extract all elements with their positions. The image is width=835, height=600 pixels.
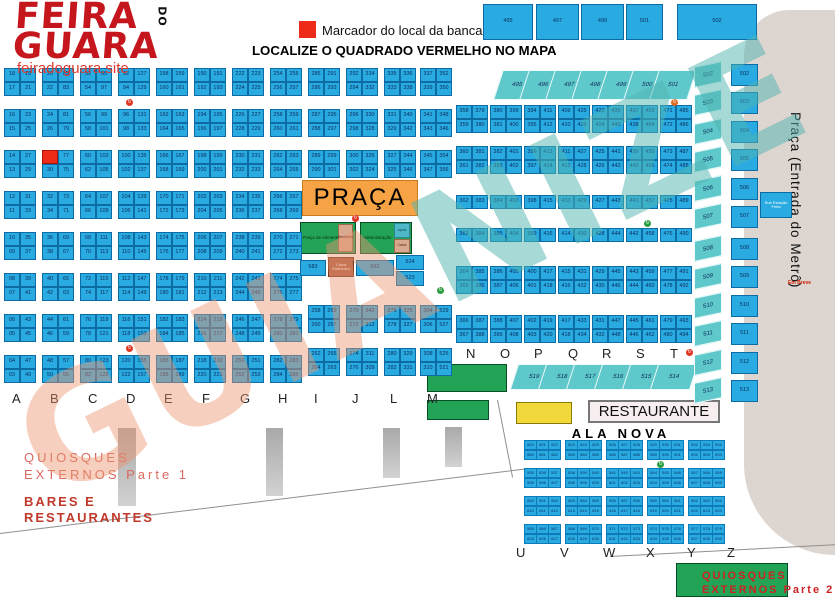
stall-cell: 511 xyxy=(731,323,758,345)
stall-cell: 383 xyxy=(490,160,506,174)
stall-cell: 606 xyxy=(671,478,684,488)
stall-cell: 274 xyxy=(346,348,362,362)
stall-cell: 43 xyxy=(20,314,36,328)
stall-cell: 534 xyxy=(712,440,725,450)
stall-cell: 306 xyxy=(420,319,436,333)
stall-cell: 101 xyxy=(96,123,112,137)
stall-cell: 330 xyxy=(362,109,378,123)
stall-cell: 194 xyxy=(194,109,210,123)
stall-cell: 48 xyxy=(42,355,58,369)
stall-cell: 340 xyxy=(400,109,416,123)
stall-cell: 473 xyxy=(660,146,676,160)
stall-cell: 507 xyxy=(694,203,722,230)
boundary-line xyxy=(497,400,514,478)
stall-cell: 44 xyxy=(42,314,58,328)
stall-cell: 245 xyxy=(248,287,264,301)
stall-cell: 187 xyxy=(172,355,188,369)
stall-cell: 630 xyxy=(589,534,602,544)
stall-cell: 64 xyxy=(80,191,96,205)
stall-cell: 474 xyxy=(660,160,676,174)
stall-cell: 264 xyxy=(308,362,324,376)
stall-cell: 402 xyxy=(524,315,540,329)
stall-cell: 260 xyxy=(308,319,324,333)
stall-cell: 506 xyxy=(694,175,722,202)
stall-cell: 54 xyxy=(80,82,96,96)
stall-cell: 325 xyxy=(400,305,416,319)
stall-cell: 270 xyxy=(270,232,286,246)
stall-cell: 170 xyxy=(156,191,172,205)
bares-line2: RESTAURANTES xyxy=(24,510,154,526)
stall-cell: 501 xyxy=(649,70,697,100)
column-letter: N xyxy=(466,346,480,360)
stall-cell: 297 xyxy=(324,123,340,137)
stall-cell: 172 xyxy=(156,205,172,219)
stall-cell: 285 xyxy=(308,68,324,82)
stall-cell: 458 xyxy=(642,228,658,242)
stall-cell: 155 xyxy=(134,355,150,369)
stall-cell: 385 xyxy=(472,266,488,280)
stall-cell: 327 xyxy=(384,150,400,164)
restrooms-block: Banheiros xyxy=(338,224,353,252)
stall-cell: 249 xyxy=(248,328,264,342)
stall-cell: 166 xyxy=(156,150,172,164)
stall-cell: 114 xyxy=(118,287,134,301)
column-letter: W xyxy=(603,545,617,559)
stall-cell: 274 xyxy=(270,273,286,287)
stall-cell: 597 xyxy=(548,478,561,488)
stall-cell: 205 xyxy=(210,205,226,219)
stall-cell: 280 xyxy=(384,348,400,362)
stall-cell: 61 xyxy=(58,314,74,328)
stall-cell: 308 xyxy=(420,348,436,362)
stall-cell: 251 xyxy=(248,355,264,369)
stall-cell: 546 xyxy=(671,468,684,478)
stall-cell: 432 xyxy=(574,280,590,294)
stall-cell: 445 xyxy=(608,266,624,280)
stall-cell: 505 xyxy=(731,149,758,171)
stall-cell: 287 xyxy=(308,109,324,123)
stall-cell: 169 xyxy=(172,164,188,178)
stall-cell: 399 xyxy=(506,105,522,119)
stall-cell: 442 xyxy=(608,160,624,174)
stall-cell: 486 xyxy=(676,119,692,133)
stall-cell: 414 xyxy=(558,228,574,242)
stall-cell: 25 xyxy=(20,123,36,137)
stall-cell: 386 xyxy=(490,266,506,280)
stall-cell: 266 xyxy=(270,191,286,205)
stall-cell: 127 xyxy=(134,68,150,82)
stall-cell: 10 xyxy=(4,232,20,246)
stall-cell: 591 xyxy=(671,450,684,460)
column-letter: Q xyxy=(568,346,582,360)
stall-cell: 454 xyxy=(642,119,658,133)
stall-cell: 460 xyxy=(642,280,658,294)
stall-cell: 272 xyxy=(346,319,362,333)
stall-cell: 342 xyxy=(400,123,416,137)
stall-cell: 405 xyxy=(506,266,522,280)
stall-cell: 311 xyxy=(362,348,378,362)
stall-cell: 523 xyxy=(396,271,424,286)
stall-cell: 335 xyxy=(384,68,400,82)
stall-cell: 443 xyxy=(608,195,624,209)
stall-cell: 145 xyxy=(134,246,150,260)
stall-cell: 573 xyxy=(630,524,643,534)
stall-cell: 143 xyxy=(134,232,150,246)
stall-cell: 302 xyxy=(346,164,362,178)
stall-cell: 397 xyxy=(524,160,540,174)
stall-cell: 359 xyxy=(456,119,472,133)
stall-cell: 212 xyxy=(194,287,210,301)
stall-cell: 567 xyxy=(548,524,561,534)
stall-cell: 459 xyxy=(642,266,658,280)
stall-cell: 103 xyxy=(96,150,112,164)
pillar xyxy=(266,428,283,496)
stall-cell: 627 xyxy=(548,534,561,544)
stall-cell: 174 xyxy=(156,232,172,246)
stall-cell: 347 xyxy=(420,164,436,178)
stall-cell: 502 xyxy=(677,4,757,40)
stall-cell: 615 xyxy=(589,506,602,516)
column-letter: P xyxy=(534,346,548,360)
stall-cell: 270 xyxy=(346,305,362,319)
stall-cell: 332 xyxy=(362,82,378,96)
column-letter: X xyxy=(646,545,660,559)
stall-cell: 479 xyxy=(660,315,676,329)
admin-label: Administração xyxy=(363,236,392,241)
column-letter: G xyxy=(240,391,254,405)
stall-cell: 401 xyxy=(524,280,540,294)
stall-cell: 478 xyxy=(660,280,676,294)
stall-cell: 504 xyxy=(731,121,758,143)
stall-cell: 497 xyxy=(536,4,579,40)
stall-cell: 285 xyxy=(286,369,302,383)
stall-cell: 300 xyxy=(346,150,362,164)
stall-cell: 230 xyxy=(232,150,248,164)
stall-cell: 341 xyxy=(420,109,436,123)
stall-cell: 211 xyxy=(210,273,226,287)
column-letter: U xyxy=(516,545,530,559)
stall-cell: 226 xyxy=(232,109,248,123)
stall-cell: 219 xyxy=(210,355,226,369)
stall-cell: 417 xyxy=(558,315,574,329)
column-letter: J xyxy=(352,391,366,405)
stall-cell: 403 xyxy=(506,195,522,209)
stall-cell: 40 xyxy=(42,273,58,287)
stall-cell: 336 xyxy=(400,68,416,82)
stall-cell: 431 xyxy=(574,266,590,280)
stall-cell: 276 xyxy=(384,305,400,319)
stall-cell: 427 xyxy=(592,195,608,209)
stall-cell: 108 xyxy=(118,232,134,246)
stall-cell: 75 xyxy=(58,164,74,178)
stall-cell: 81 xyxy=(58,109,74,123)
stall-cell: 428 xyxy=(592,228,608,242)
stall-cell: 331 xyxy=(400,362,416,376)
stall-cell: 118 xyxy=(118,328,134,342)
stall-cell: 133 xyxy=(134,123,150,137)
stall-cell: 11 xyxy=(4,205,20,219)
stall-cell: 121 xyxy=(96,328,112,342)
stall-cell: 218 xyxy=(194,355,210,369)
stall-cell: 480 xyxy=(660,329,676,343)
stall-cell: 633 xyxy=(630,534,643,544)
stall-cell: 23 xyxy=(20,109,36,123)
stall-cell: 442 xyxy=(626,228,642,242)
stall-cell: 80 xyxy=(80,355,96,369)
stall-cell: 510 xyxy=(694,292,722,319)
stall-cell: 254 xyxy=(270,68,286,82)
stall-cell: 509 xyxy=(731,266,758,288)
stall-cell: 446 xyxy=(608,280,624,294)
stall-cell: 151 xyxy=(134,314,150,328)
quiosques-externos-2-label: QUIOSQUES EXTERNOS Parte 2 xyxy=(702,569,834,598)
stall-cell: 262 xyxy=(270,150,286,164)
stall-cell: 492 xyxy=(676,280,692,294)
stall-cell: 428 xyxy=(574,160,590,174)
bares-line1: BARES E xyxy=(24,494,154,510)
stall-cell: 439 xyxy=(608,105,624,119)
stall-cell: 618 xyxy=(630,506,643,516)
stall-cell: 256 xyxy=(270,82,286,96)
stall-cell: 57 xyxy=(58,355,74,369)
stall-cell: 236 xyxy=(232,205,248,219)
stall-cell: 197 xyxy=(210,123,226,137)
stall-cell: 78 xyxy=(80,328,96,342)
stall-cell: 333 xyxy=(384,82,400,96)
stall-cell: 158 xyxy=(156,68,172,82)
stall-cell: 380 xyxy=(490,105,506,119)
stall-cell: 135 xyxy=(134,150,150,164)
stall-cell: 415 xyxy=(558,266,574,280)
stall-cell: 506 xyxy=(731,178,758,200)
stall-cell: 168 xyxy=(156,164,172,178)
stall-cell: 67 xyxy=(58,246,74,260)
stall-cell: 404 xyxy=(506,228,522,242)
stall-cell: 413 xyxy=(540,146,556,160)
stall-cell: 509 xyxy=(694,263,722,290)
stall-cell: 429 xyxy=(574,195,590,209)
stall-cell: 329 xyxy=(384,123,400,137)
stall-cell: 263 xyxy=(286,150,302,164)
stall-cell: 106 xyxy=(118,205,134,219)
column-letter: M xyxy=(427,391,441,405)
stall-cell: 338 xyxy=(400,82,416,96)
pillar xyxy=(383,428,400,478)
stall-cell: 37 xyxy=(20,246,36,260)
stall-cell: 246 xyxy=(232,314,248,328)
stall-cell: 507 xyxy=(731,206,758,228)
stall-cell: 513 xyxy=(731,380,758,402)
stall-cell: 239 xyxy=(248,232,264,246)
stall-cell: 412 xyxy=(558,160,574,174)
stall-cell: 472 xyxy=(660,119,676,133)
arrow-marker-icon: ↻ xyxy=(644,220,651,227)
stall-cell: 549 xyxy=(712,468,725,478)
stall-cell: 361 xyxy=(456,160,472,174)
stall-cell: 543 xyxy=(630,468,643,478)
stall-cell: 537 xyxy=(548,468,561,478)
stall-cell: 503 xyxy=(731,92,758,114)
stall-cell: 22 xyxy=(42,82,58,96)
stall-cell: 210 xyxy=(194,273,210,287)
stall-cell: 420 xyxy=(540,329,556,343)
stall-cell: 455 xyxy=(642,146,658,160)
column-letter: O xyxy=(500,346,514,360)
stall-cell: 233 xyxy=(248,164,264,178)
stall-cell: 512 xyxy=(731,352,758,374)
stall-cell: 163 xyxy=(172,109,188,123)
stall-cell: 441 xyxy=(608,146,624,160)
stall-cell: 38 xyxy=(42,246,58,260)
stall-cell: 301 xyxy=(324,164,340,178)
stall-cell: 253 xyxy=(248,369,264,383)
quiosques2-line1: QUIOSQUES xyxy=(702,569,834,583)
stall-cell: 165 xyxy=(172,123,188,137)
stall-cell: 271 xyxy=(286,232,302,246)
stall-cell: 396 xyxy=(524,146,540,160)
stall-cell: 334 xyxy=(362,68,378,82)
stall-cell: 193 xyxy=(210,82,226,96)
stall-cell: 528 xyxy=(630,440,643,450)
stall-cell: 242 xyxy=(232,273,248,287)
stall-cell: 508 xyxy=(694,235,722,262)
column-letter: Y xyxy=(687,545,701,559)
stall-cell: 453 xyxy=(642,105,658,119)
stall-cell: 31 xyxy=(20,191,36,205)
stall-cell: 502 xyxy=(731,64,758,86)
stall-cell: 411 xyxy=(558,146,574,160)
column-letter: B xyxy=(50,391,64,405)
stall-cell: 342 xyxy=(362,305,378,319)
stall-cell: 362 xyxy=(456,195,472,209)
metro-plaza-label: Praça (Entrada do Metrô) xyxy=(788,112,803,442)
stall-cell: 45 xyxy=(20,328,36,342)
stall-cell: 438 xyxy=(626,119,642,133)
stall-cell: 490 xyxy=(676,228,692,242)
stall-cell: 540 xyxy=(589,468,602,478)
stall-cell: 109 xyxy=(96,205,112,219)
stall-cell: 493 xyxy=(676,315,692,329)
stall-cell: 414 xyxy=(540,160,556,174)
stall-cell: 304 xyxy=(420,305,436,319)
stall-cell: 257 xyxy=(286,82,302,96)
stall-cell: 488 xyxy=(676,160,692,174)
stall-cell: 277 xyxy=(286,287,302,301)
marked-stall-cell xyxy=(42,150,58,164)
stall-cell: 182 xyxy=(156,314,172,328)
stall-cell: 279 xyxy=(286,314,302,328)
stall-cell: 260 xyxy=(270,123,286,137)
stall-cell: 104 xyxy=(118,191,134,205)
red-marker-legend-icon xyxy=(299,21,316,38)
stall-cell: 440 xyxy=(626,160,642,174)
stall-cell: 425 xyxy=(592,146,608,160)
column-letter: I xyxy=(314,391,328,405)
stall-cell: 410 xyxy=(558,119,574,133)
stall-cell: 325 xyxy=(384,164,400,178)
stall-cell: 255 xyxy=(286,68,302,82)
stall-cell: 299 xyxy=(324,150,340,164)
stall-cell: 184 xyxy=(156,328,172,342)
stall-cell: 291 xyxy=(324,68,340,82)
stall-cell: 408 xyxy=(506,329,522,343)
stall-cell: 512 xyxy=(694,349,722,376)
logo-do-text: DO xyxy=(156,6,169,26)
stall-cell: 352 xyxy=(436,68,452,82)
stall-cell: 564 xyxy=(712,496,725,506)
stall-cell: 379 xyxy=(472,105,488,119)
stall-cell: 331 xyxy=(384,109,400,123)
stall-cell: 407 xyxy=(506,315,522,329)
stall-cell: 03 xyxy=(4,369,20,383)
stall-cell: 400 xyxy=(524,266,540,280)
stall-cell: 225 xyxy=(248,82,264,96)
stall-cell: 21 xyxy=(20,82,36,96)
stall-cell: 621 xyxy=(671,506,684,516)
stall-cell: 160 xyxy=(156,82,172,96)
stall-cell: 70 xyxy=(80,246,96,260)
stall-cell: 244 xyxy=(232,287,248,301)
stall-cell: 416 xyxy=(558,280,574,294)
stall-cell: 68 xyxy=(80,232,96,246)
stall-cell: 425 xyxy=(574,105,590,119)
stall-cell: 107 xyxy=(96,191,112,205)
stall-cell: 367 xyxy=(456,329,472,343)
stall-cell: 27 xyxy=(20,150,36,164)
stall-cell: 429 xyxy=(592,266,608,280)
stall-cell: 189 xyxy=(172,369,188,383)
stall-cell: 278 xyxy=(384,319,400,333)
stall-cell: 50 xyxy=(42,369,58,383)
stall-cell: 363 xyxy=(456,228,472,242)
stall-cell: 409 xyxy=(558,105,574,119)
stall-cell: 531 xyxy=(671,440,684,450)
stall-cell: 324 xyxy=(362,164,378,178)
stall-cell: 94 xyxy=(118,82,134,96)
stall-cell: 346 xyxy=(436,123,452,137)
stall-cell: 514 xyxy=(650,364,698,390)
stall-cell: 60 xyxy=(80,150,96,164)
stall-cell: 259 xyxy=(286,109,302,123)
stall-cell: 241 xyxy=(248,246,264,260)
stall-cell: 437 xyxy=(626,105,642,119)
stall-cell: 594 xyxy=(712,450,725,460)
stall-cell: 12 xyxy=(4,191,20,205)
stall-cell: 582 xyxy=(548,450,561,460)
stall-cell: 525 xyxy=(589,440,602,450)
stall-cell: 39 xyxy=(20,273,36,287)
stall-cell: 74 xyxy=(80,287,96,301)
stall-cell: 415 xyxy=(540,195,556,209)
stall-cell: 76 xyxy=(80,314,96,328)
stall-cell: 328 xyxy=(362,123,378,137)
stall-cell: 183 xyxy=(172,314,188,328)
column-letter: A xyxy=(12,391,26,405)
em-breve-label: Em Breve xyxy=(788,280,811,286)
stall-cell: 264 xyxy=(270,164,286,178)
stall-cell: 198 xyxy=(194,150,210,164)
stall-cell: 445 xyxy=(626,315,642,329)
stall-cell: 476 xyxy=(660,228,676,242)
stall-cell: 295 xyxy=(324,109,340,123)
stall-cell: 177 xyxy=(172,246,188,260)
stall-cell: 181 xyxy=(172,287,188,301)
stall-cell: 624 xyxy=(712,506,725,516)
stall-cell: 262 xyxy=(308,348,324,362)
stall-cell: 208 xyxy=(194,246,210,260)
stall-cell: 224 xyxy=(232,82,248,96)
stall-cell: 175 xyxy=(172,232,188,246)
